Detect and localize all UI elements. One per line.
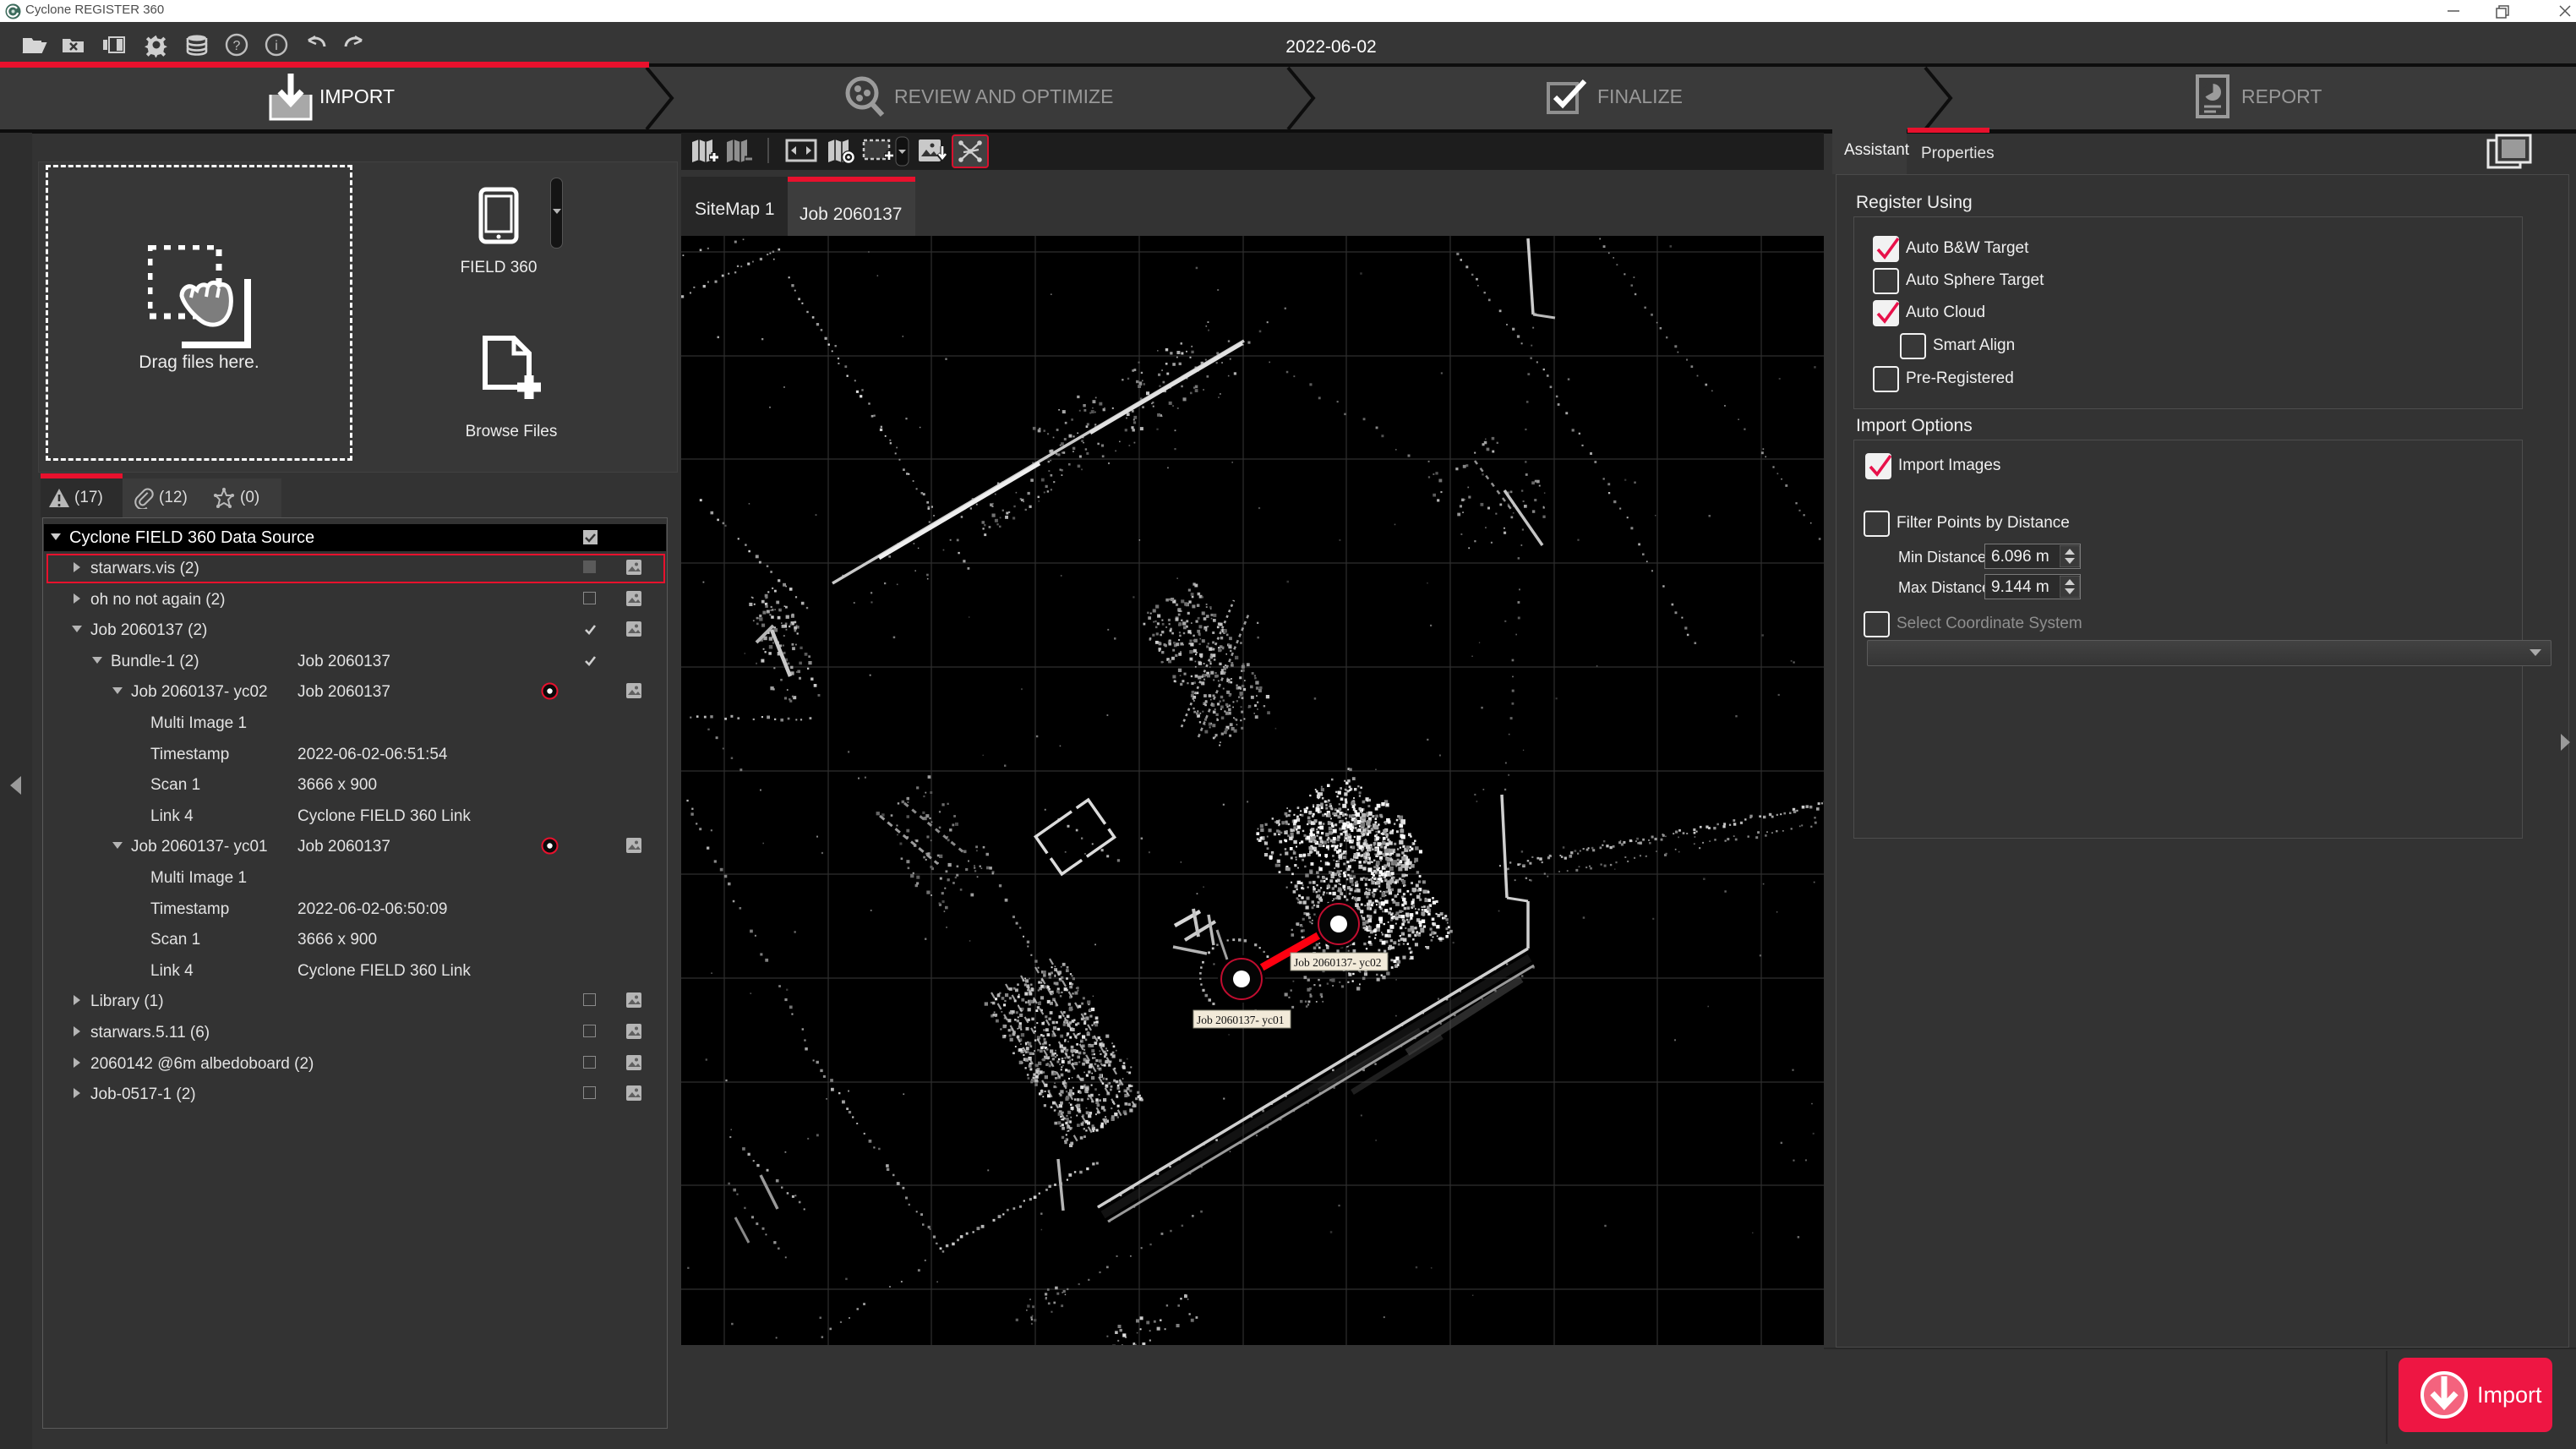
svg-text:?: ?: [233, 39, 241, 53]
svg-text:Job 2060137- yc02: Job 2060137- yc02: [1294, 956, 1382, 969]
svg-text:Job 2060137- yc01: Job 2060137- yc01: [1197, 1014, 1285, 1026]
svg-text:i: i: [275, 39, 278, 53]
